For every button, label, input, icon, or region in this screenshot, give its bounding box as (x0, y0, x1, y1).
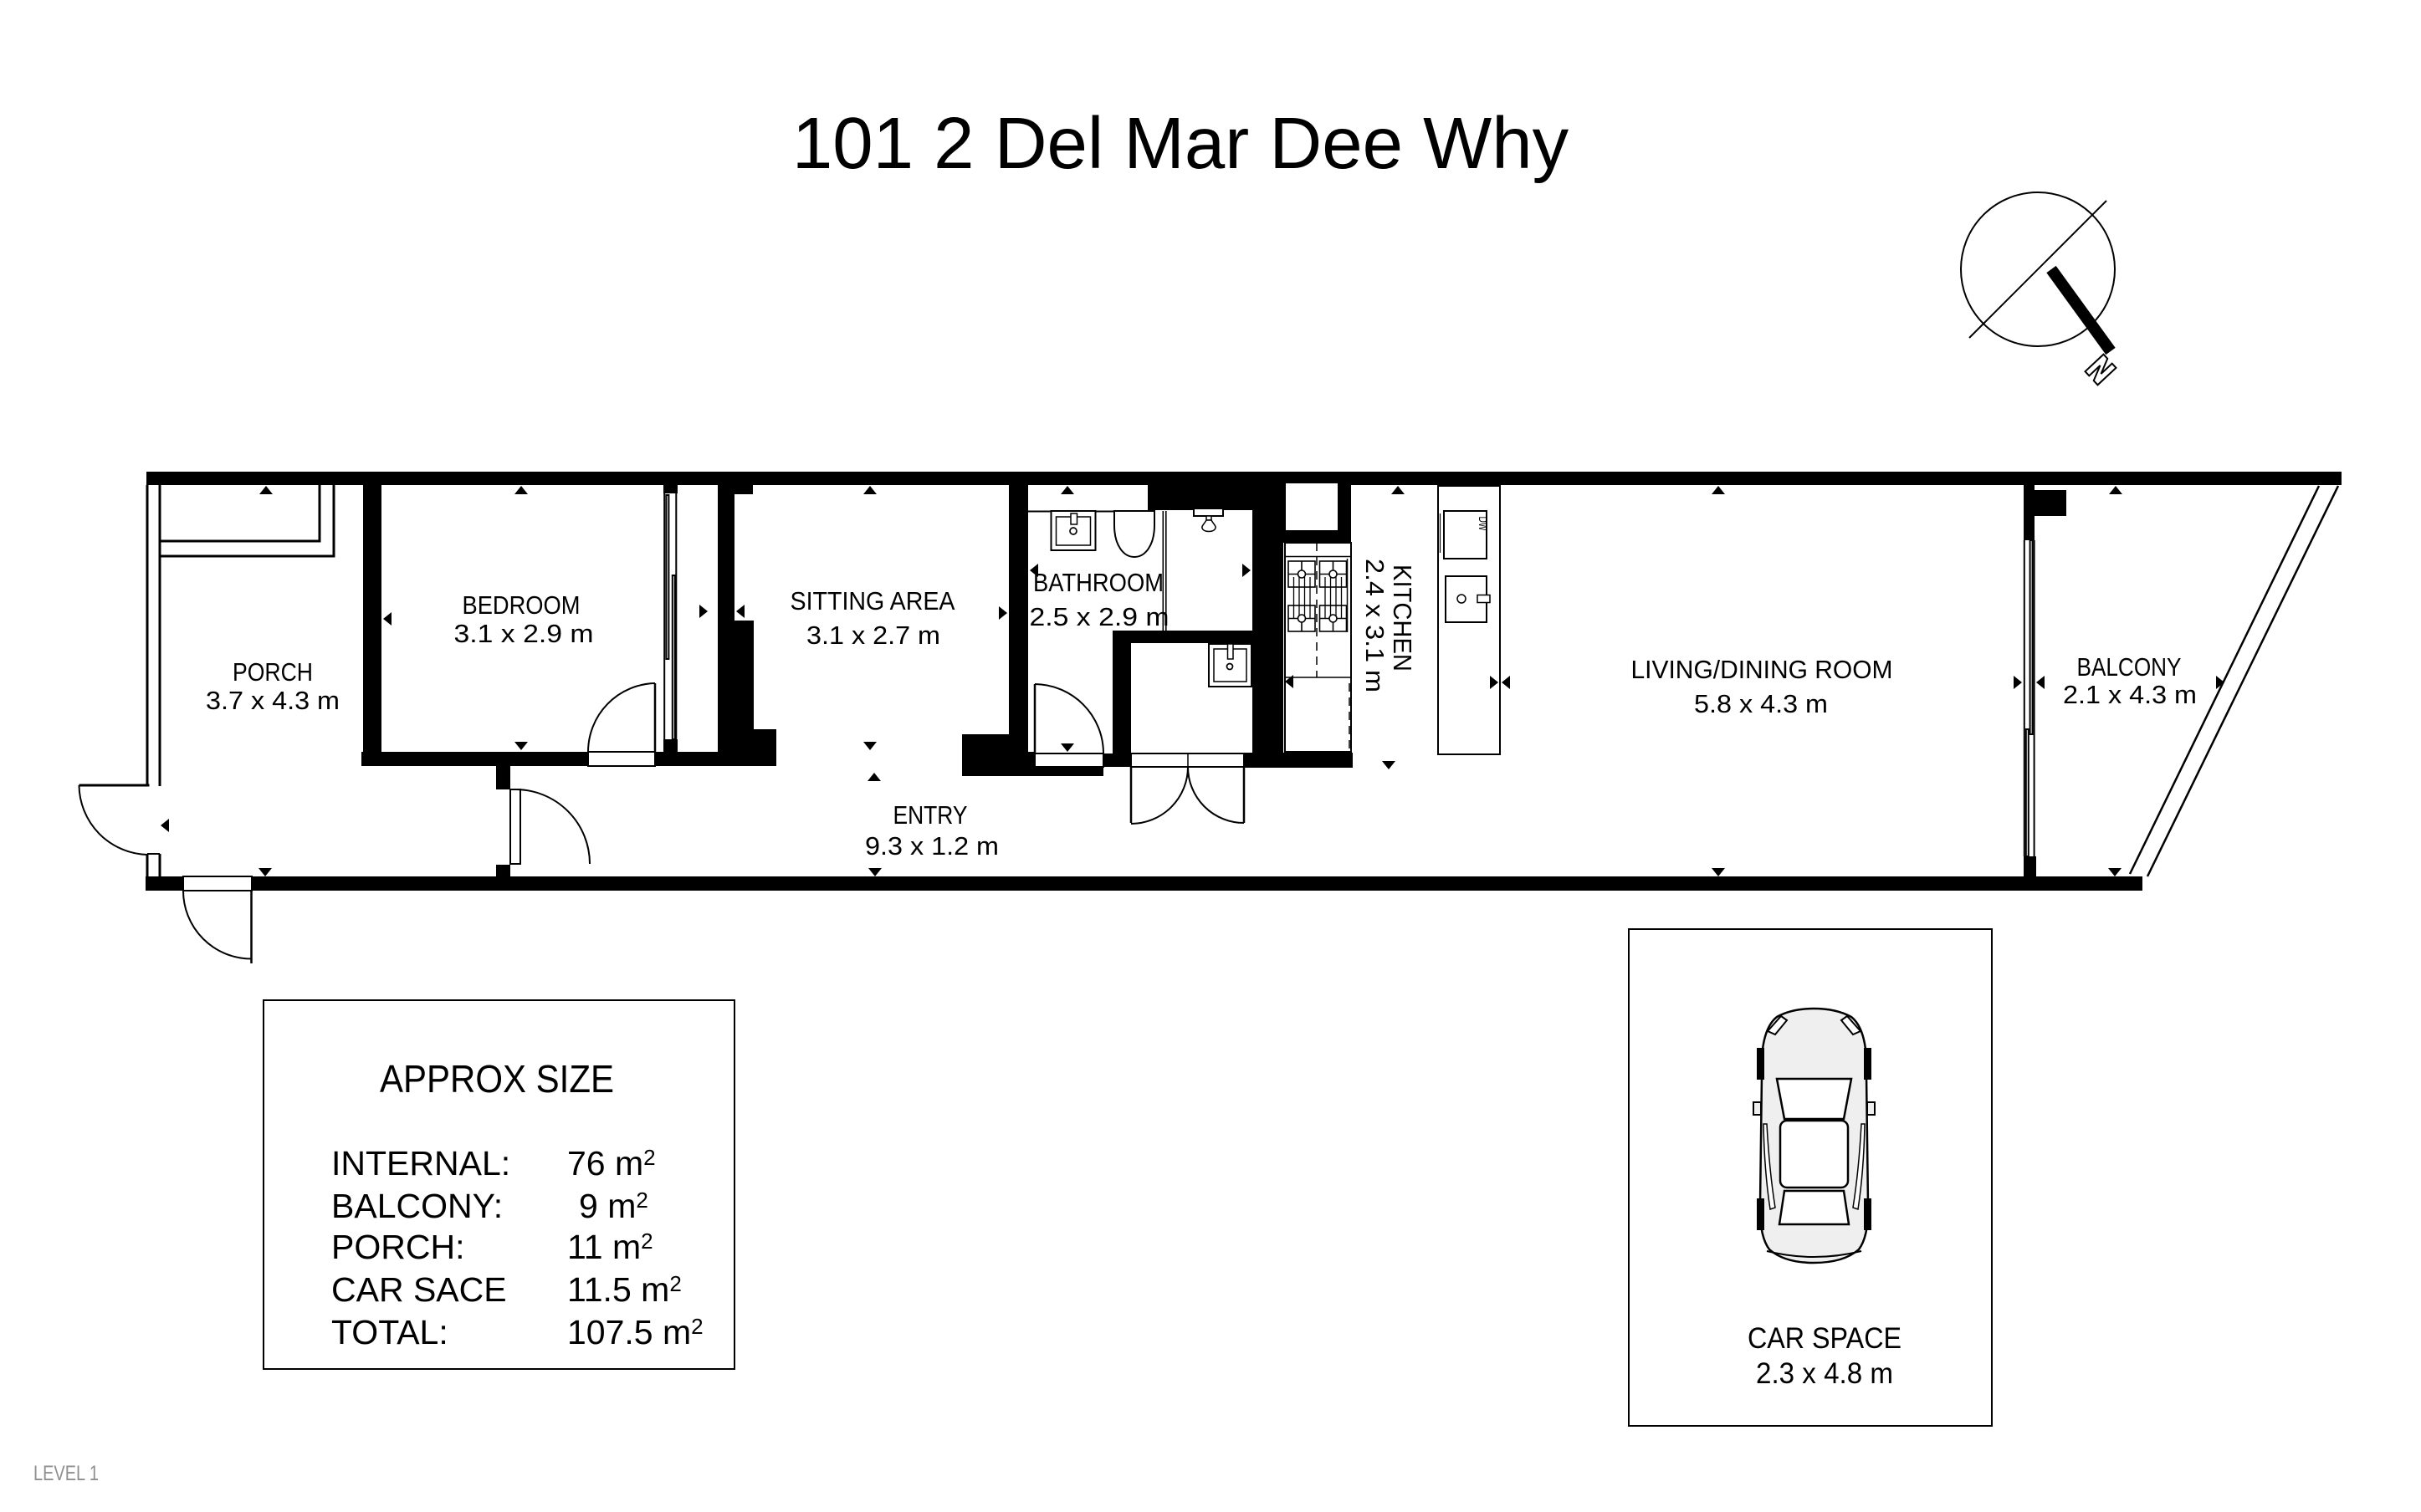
svg-text:2.5 x 2.9 m: 2.5 x 2.9 m (1030, 602, 1170, 631)
svg-text:ENTRY: ENTRY (893, 800, 968, 830)
svg-text:CAR SACE: CAR SACE (331, 1270, 507, 1309)
svg-text:LIVING/DINING ROOM: LIVING/DINING ROOM (1631, 655, 1893, 684)
svg-text:BALCONY:: BALCONY: (331, 1187, 503, 1225)
svg-text:APPROX SIZE: APPROX SIZE (380, 1057, 614, 1101)
svg-text:101 2 Del Mar Dee Why: 101 2 Del Mar Dee Why (792, 103, 1569, 184)
svg-text:3.1 x 2.7 m: 3.1 x 2.7 m (806, 621, 940, 650)
svg-text:BALCONY: BALCONY (2077, 652, 2182, 682)
svg-text:11 m2: 11 m2 (567, 1228, 653, 1266)
svg-text:2.4 x 3.1 m: 2.4 x 3.1 m (1360, 559, 1390, 692)
svg-text:TOTAL:: TOTAL: (331, 1313, 448, 1351)
svg-text:DW: DW (1476, 517, 1490, 532)
svg-text:9.3 x 1.2 m: 9.3 x 1.2 m (865, 831, 999, 861)
svg-text:3.1 x 2.9 m: 3.1 x 2.9 m (454, 619, 594, 648)
svg-text:2.3 x 4.8 m: 2.3 x 4.8 m (1756, 1357, 1893, 1390)
svg-text:KITCHEN: KITCHEN (1388, 564, 1417, 672)
svg-text:PORCH: PORCH (233, 657, 313, 687)
svg-text:SITTING AREA: SITTING AREA (791, 586, 955, 616)
svg-text:76 m2: 76 m2 (567, 1144, 656, 1183)
svg-text:5.8 x 4.3 m: 5.8 x 4.3 m (1694, 689, 1828, 718)
svg-text:INTERNAL:: INTERNAL: (331, 1144, 510, 1183)
svg-text:11.5 m2: 11.5 m2 (567, 1270, 682, 1309)
svg-text:PORCH:: PORCH: (331, 1228, 464, 1266)
svg-text:BATHROOM: BATHROOM (1033, 568, 1164, 597)
svg-text:3.7 x 4.3 m: 3.7 x 4.3 m (206, 686, 340, 715)
svg-text:BEDROOM: BEDROOM (463, 590, 581, 620)
svg-text:CAR SPACE: CAR SPACE (1748, 1322, 1901, 1355)
svg-text:LEVEL 1: LEVEL 1 (33, 1462, 99, 1485)
svg-text:107.5 m2: 107.5 m2 (567, 1313, 704, 1351)
svg-text:2.1 x 4.3 m: 2.1 x 4.3 m (2063, 680, 2197, 709)
